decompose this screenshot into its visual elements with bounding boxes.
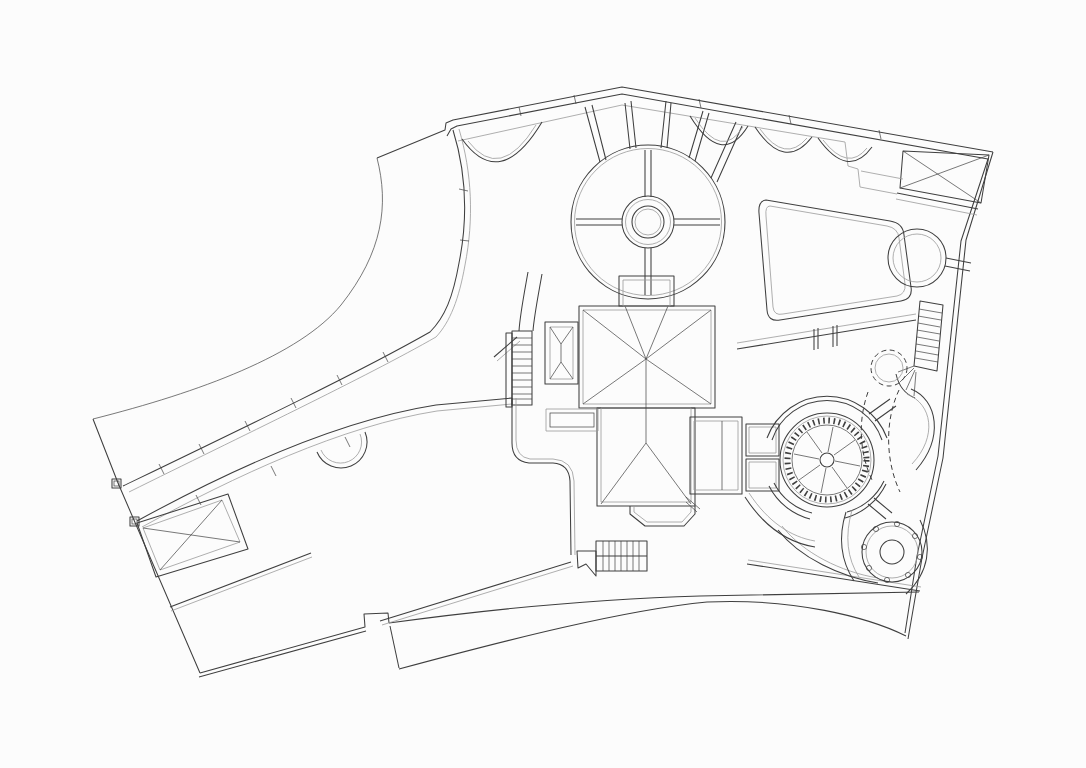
fountain-dentil-coping	[788, 421, 867, 500]
parterre-garden	[519, 101, 742, 331]
west-trellis	[137, 494, 312, 611]
fountain-jets	[794, 427, 860, 493]
fountain	[745, 396, 896, 547]
site-boundary	[93, 87, 993, 677]
side-stair	[506, 331, 532, 407]
radial-paths	[585, 101, 742, 182]
gate-posts	[112, 479, 139, 526]
fan-steps	[896, 366, 916, 398]
bay-skylight	[545, 322, 578, 384]
main-house-roof	[506, 276, 742, 576]
lawn-panel	[737, 200, 916, 350]
entry-porch	[619, 276, 674, 306]
spa-pool	[842, 510, 923, 583]
tree-ring	[888, 229, 971, 287]
garden-stair	[896, 301, 943, 398]
roof-lines	[583, 306, 711, 504]
east-terrace	[690, 417, 742, 494]
garden-bed-scallops	[462, 116, 872, 162]
site-plan-canvas	[0, 0, 1086, 768]
rear-stair	[577, 497, 700, 576]
site-plan-drawing	[0, 0, 1086, 768]
parterre-cross-paths	[576, 150, 720, 295]
wall-semicircle-bay	[317, 432, 367, 468]
south-bay	[630, 506, 695, 526]
ne-trellis	[861, 151, 989, 215]
